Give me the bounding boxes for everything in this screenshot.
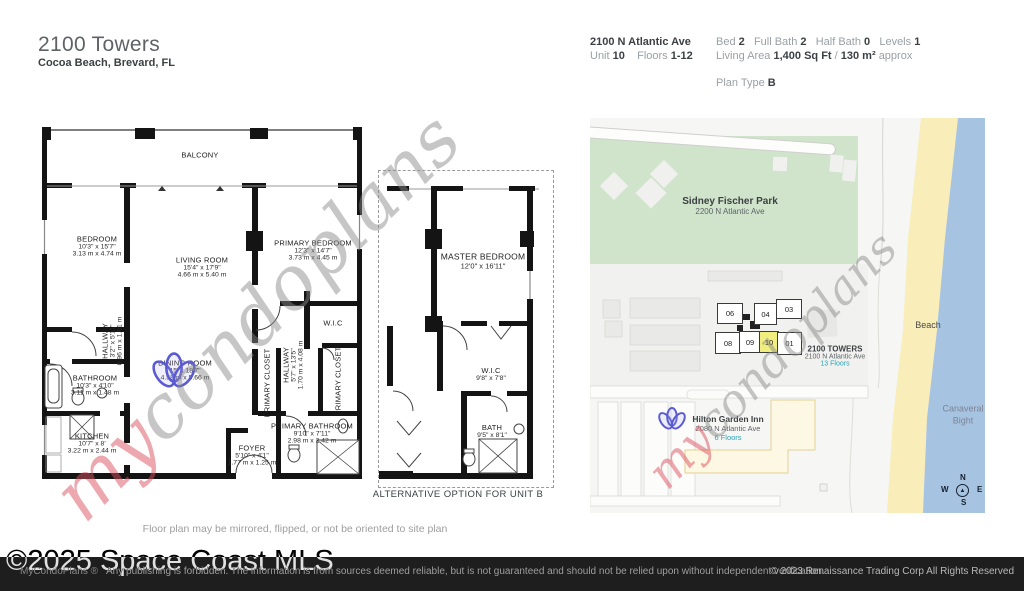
room-label-bathroom: BATHROOM 10'3" x 4'10" 3.11 m x 1.48 m bbox=[71, 374, 119, 397]
page-subtitle: Cocoa Beach, Brevard, FL bbox=[38, 57, 175, 69]
room-label-wic: W.I.C bbox=[323, 319, 342, 328]
unit-box-03: 03 bbox=[776, 299, 802, 319]
room-label-hallway-small: HALLWAY 3'2" x 5'11" 0.96 m x 1.81 m bbox=[101, 317, 124, 366]
room-label-primary-closet-left: PRIMARY CLOSET bbox=[263, 349, 272, 418]
compass-south-label: S bbox=[961, 498, 966, 507]
stats-line: Bed 2 Full Bath 2 Half Bath 0 Levels 1 bbox=[716, 36, 920, 48]
room-label-bath-alt: BATH 9'5" x 8'1" bbox=[477, 423, 507, 439]
floorplan-alternative: MASTER BEDROOM 12'0" x 16'11" W.I.C 9'8"… bbox=[378, 170, 554, 488]
plan-type-line: Plan Type B bbox=[716, 77, 776, 89]
floorplan-main: BALCONY BEDROOM 10'3" x 15'7" 3.13 m x 4… bbox=[40, 125, 364, 485]
room-label-wic-alt: W.I.C 9'8" x 7'8" bbox=[476, 366, 506, 382]
page: 2100 Towers Cocoa Beach, Brevard, FL 210… bbox=[0, 0, 1024, 591]
living-area-line: Living Area 1,400 Sq Ft / 130 m² approx bbox=[716, 50, 912, 62]
room-label-living: LIVING ROOM 15'4" x 17'9" 4.66 m x 5.40 … bbox=[176, 256, 228, 279]
room-label-foyer: FOYER 5'10" x 4'1" 1.77 m x 1.25 m bbox=[228, 444, 277, 467]
unit-box-08: 08 bbox=[715, 332, 741, 354]
room-label-master-bedroom: MASTER BEDROOM 12'0" x 16'11" bbox=[441, 252, 526, 271]
compass-east-label: E bbox=[977, 485, 982, 494]
room-label-bedroom: BEDROOM 10'3" x 15'7" 3.13 m x 4.74 m bbox=[73, 235, 122, 258]
property-address: 2100 N Atlantic Ave bbox=[590, 36, 691, 48]
compass-north-label: N bbox=[960, 473, 966, 482]
unit-box-01: 01 bbox=[777, 332, 802, 355]
compass-west-label: W bbox=[941, 485, 949, 494]
flower-watermark-icon bbox=[148, 351, 200, 407]
flower-watermark-icon bbox=[656, 406, 688, 442]
mls-overlay-text: ©2025 Space Coast MLS bbox=[6, 545, 334, 578]
room-label-balcony: BALCONY bbox=[181, 151, 218, 160]
site-map: 06 04 03 08 09 10 01 Sidney Fischer Park… bbox=[590, 118, 985, 513]
water-label: Canaveral Bight bbox=[932, 403, 994, 426]
footer-copyright: © 2023 Renaissance Trading Corp All Righ… bbox=[770, 566, 1014, 577]
compass-rose-icon: ▲ bbox=[956, 484, 969, 497]
room-label-primary-bedroom: PRIMARY BEDROOM 12'3" x 14'7" 3.73 m x 4… bbox=[274, 239, 352, 262]
hotel-label: Hilton Garden Inn 2080 N Atlantic Ave 6 … bbox=[692, 414, 763, 442]
unit-box-06: 06 bbox=[717, 303, 743, 324]
floorplan-caption: Floor plan may be mirrored, flipped, or … bbox=[100, 523, 490, 535]
floorplan-alt-walls bbox=[379, 171, 553, 487]
room-label-hallway-main: HALLWAY 5'7" x 13'5" 1.70 m x 4.08 m bbox=[282, 341, 305, 390]
park-label: Sidney Fischer Park 2200 N Atlantic Ave bbox=[682, 196, 778, 216]
unit-box-04: 04 bbox=[754, 303, 777, 325]
room-label-kitchen: KITCHEN 10'7" x 8' 3.22 m x 2.44 m bbox=[68, 432, 117, 455]
unit-box-09: 09 bbox=[739, 331, 761, 353]
unit-floors-line: Unit 10 Floors 1-12 bbox=[590, 50, 693, 62]
page-title: 2100 Towers bbox=[38, 33, 160, 57]
room-label-primary-closet-right: PRIMARY CLOSET bbox=[334, 347, 343, 416]
room-label-primary-bathroom: PRIMARY BATHROOM 9'10" x 7'11" 2.98 m x … bbox=[271, 422, 353, 445]
alt-plan-caption: ALTERNATIVE OPTION FOR UNIT B bbox=[368, 489, 548, 500]
beach-label: Beach bbox=[915, 320, 941, 330]
tower-label: 2100 TOWERS 2100 N Atlantic Ave 13 Floor… bbox=[805, 345, 866, 368]
unit-box-10-highlighted: 10 bbox=[759, 331, 779, 353]
